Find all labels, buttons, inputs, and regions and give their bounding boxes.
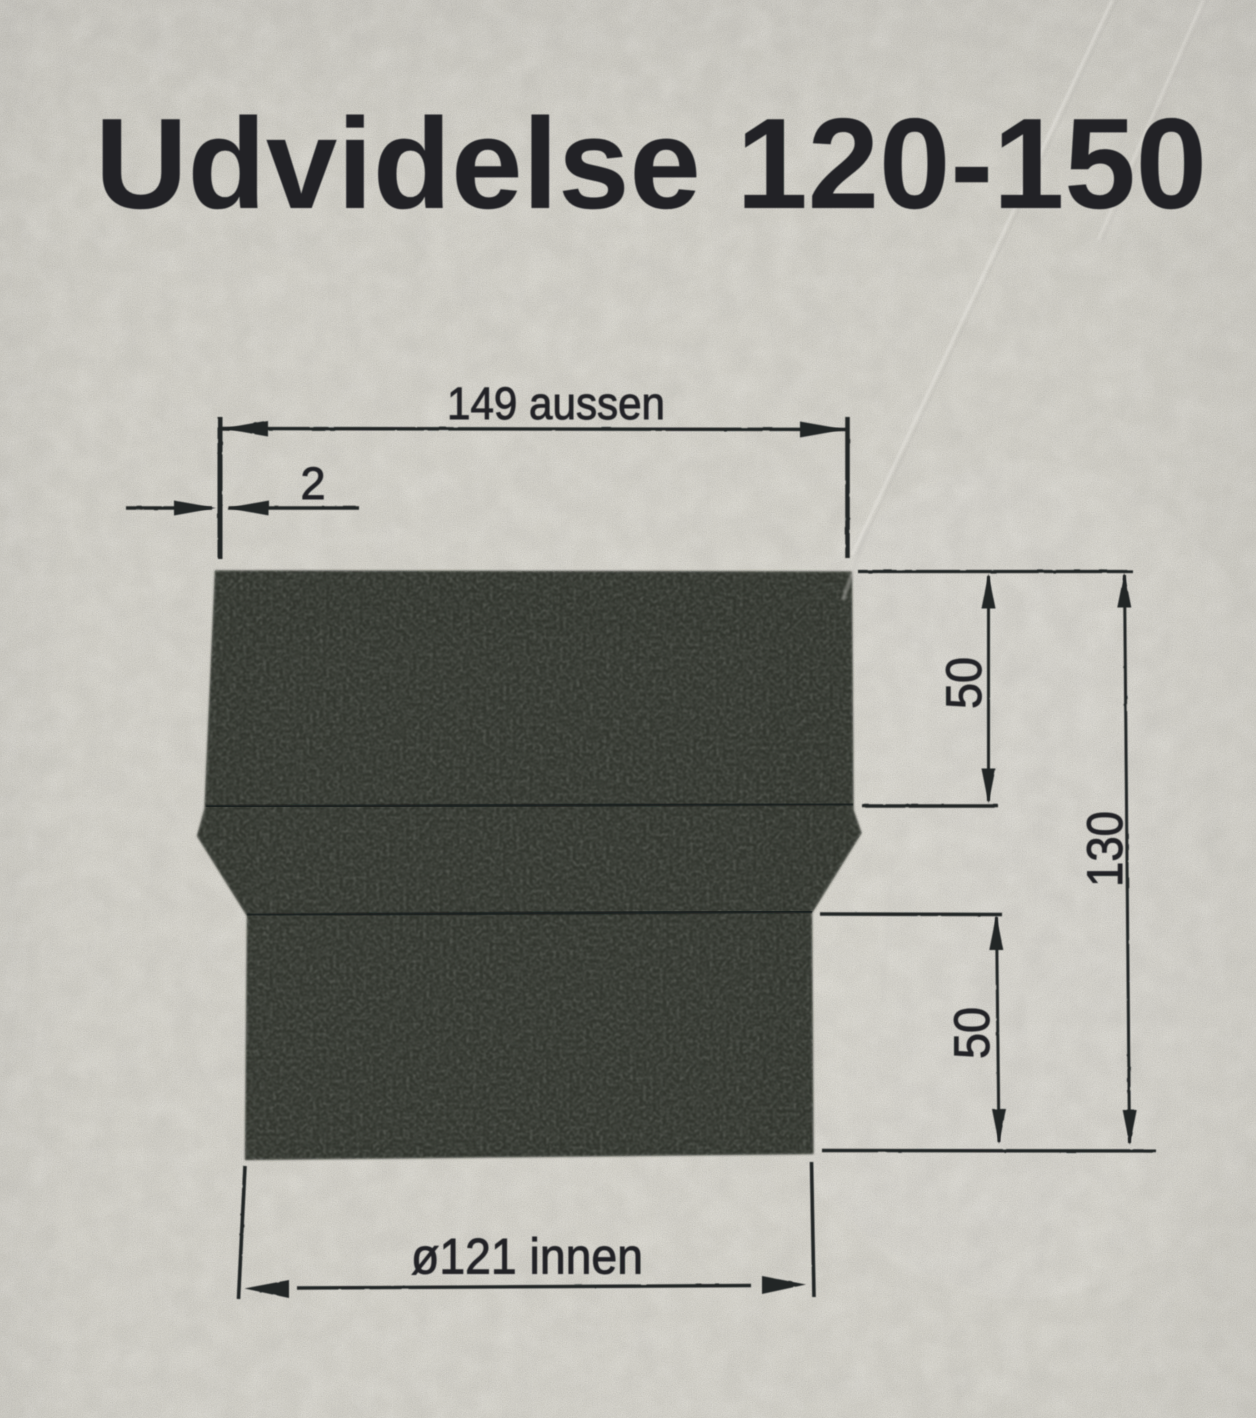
svg-text:2: 2 [300,458,325,509]
svg-text:50: 50 [936,657,992,709]
svg-text:130: 130 [1077,811,1133,887]
svg-text:50: 50 [944,1007,1000,1059]
svg-text:Udvidelse 120-150: Udvidelse 120-150 [95,92,1207,236]
svg-text:149 aussen: 149 aussen [447,378,665,429]
svg-text:ø121 innen: ø121 innen [411,1228,643,1285]
